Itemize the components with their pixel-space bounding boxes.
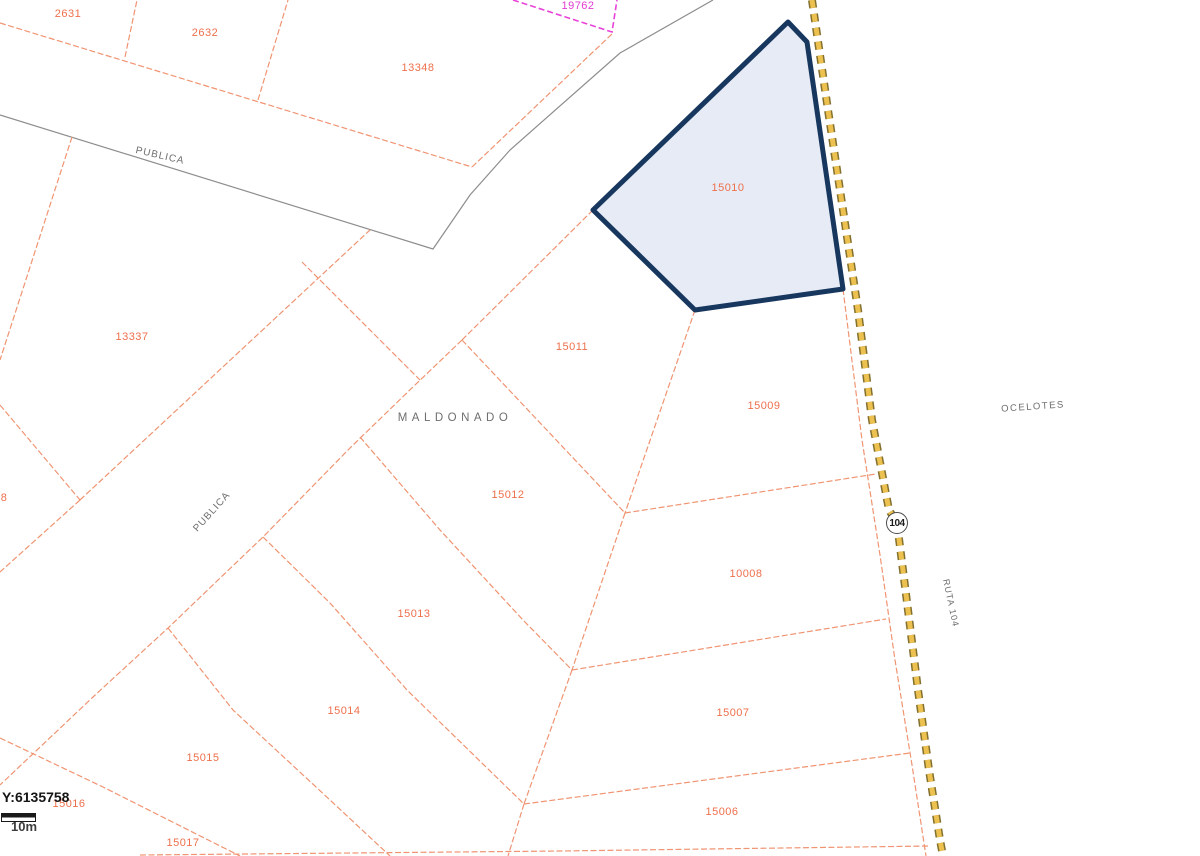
route-104-line bbox=[812, 0, 943, 856]
map-viewport[interactable]: 2631263213348197621501013337150111500981… bbox=[0, 0, 1200, 856]
scale-label: 10m bbox=[11, 819, 37, 834]
map-canvas[interactable] bbox=[0, 0, 1200, 856]
magenta-parcel-boundary bbox=[513, 0, 617, 32]
y-coordinate-readout: Y:6135758 bbox=[2, 789, 69, 805]
highlighted-parcel-15010[interactable] bbox=[593, 22, 843, 310]
route-104-shield: 104 bbox=[886, 512, 908, 534]
